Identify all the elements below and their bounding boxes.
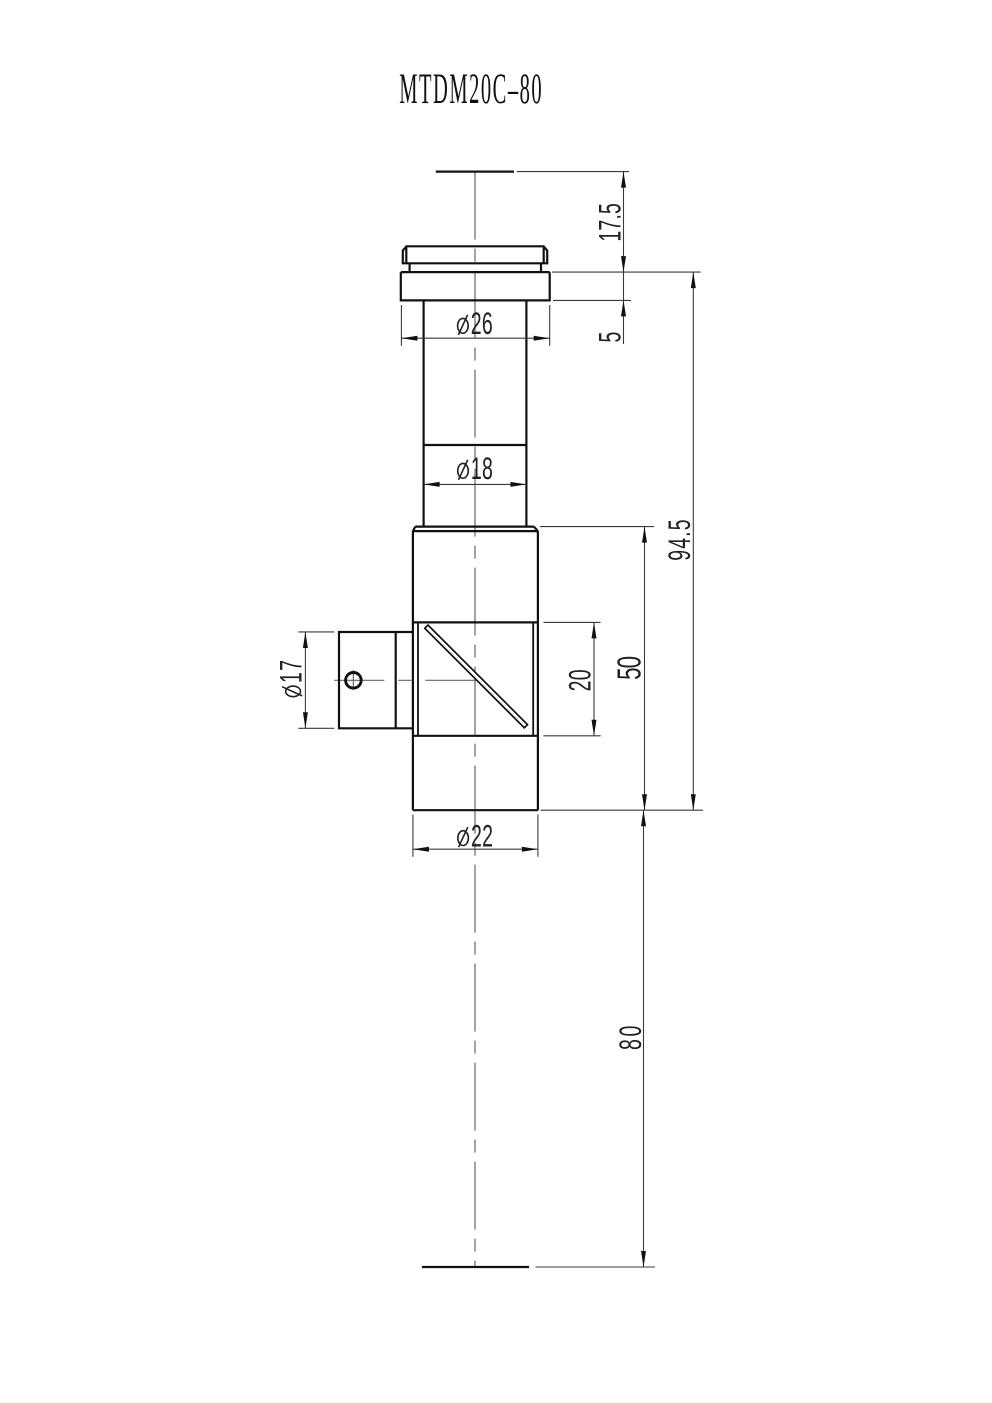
svg-text:MTDM20C–80: MTDM20C–80 bbox=[399, 66, 543, 113]
svg-text:20: 20 bbox=[562, 669, 598, 691]
svg-text:22: 22 bbox=[471, 817, 493, 853]
svg-text:94.5: 94.5 bbox=[661, 519, 697, 560]
svg-text:17.5: 17.5 bbox=[592, 203, 628, 242]
svg-text:50: 50 bbox=[610, 656, 647, 680]
svg-text:5: 5 bbox=[591, 332, 627, 343]
svg-text:18: 18 bbox=[471, 450, 493, 486]
svg-text:26: 26 bbox=[471, 305, 493, 341]
